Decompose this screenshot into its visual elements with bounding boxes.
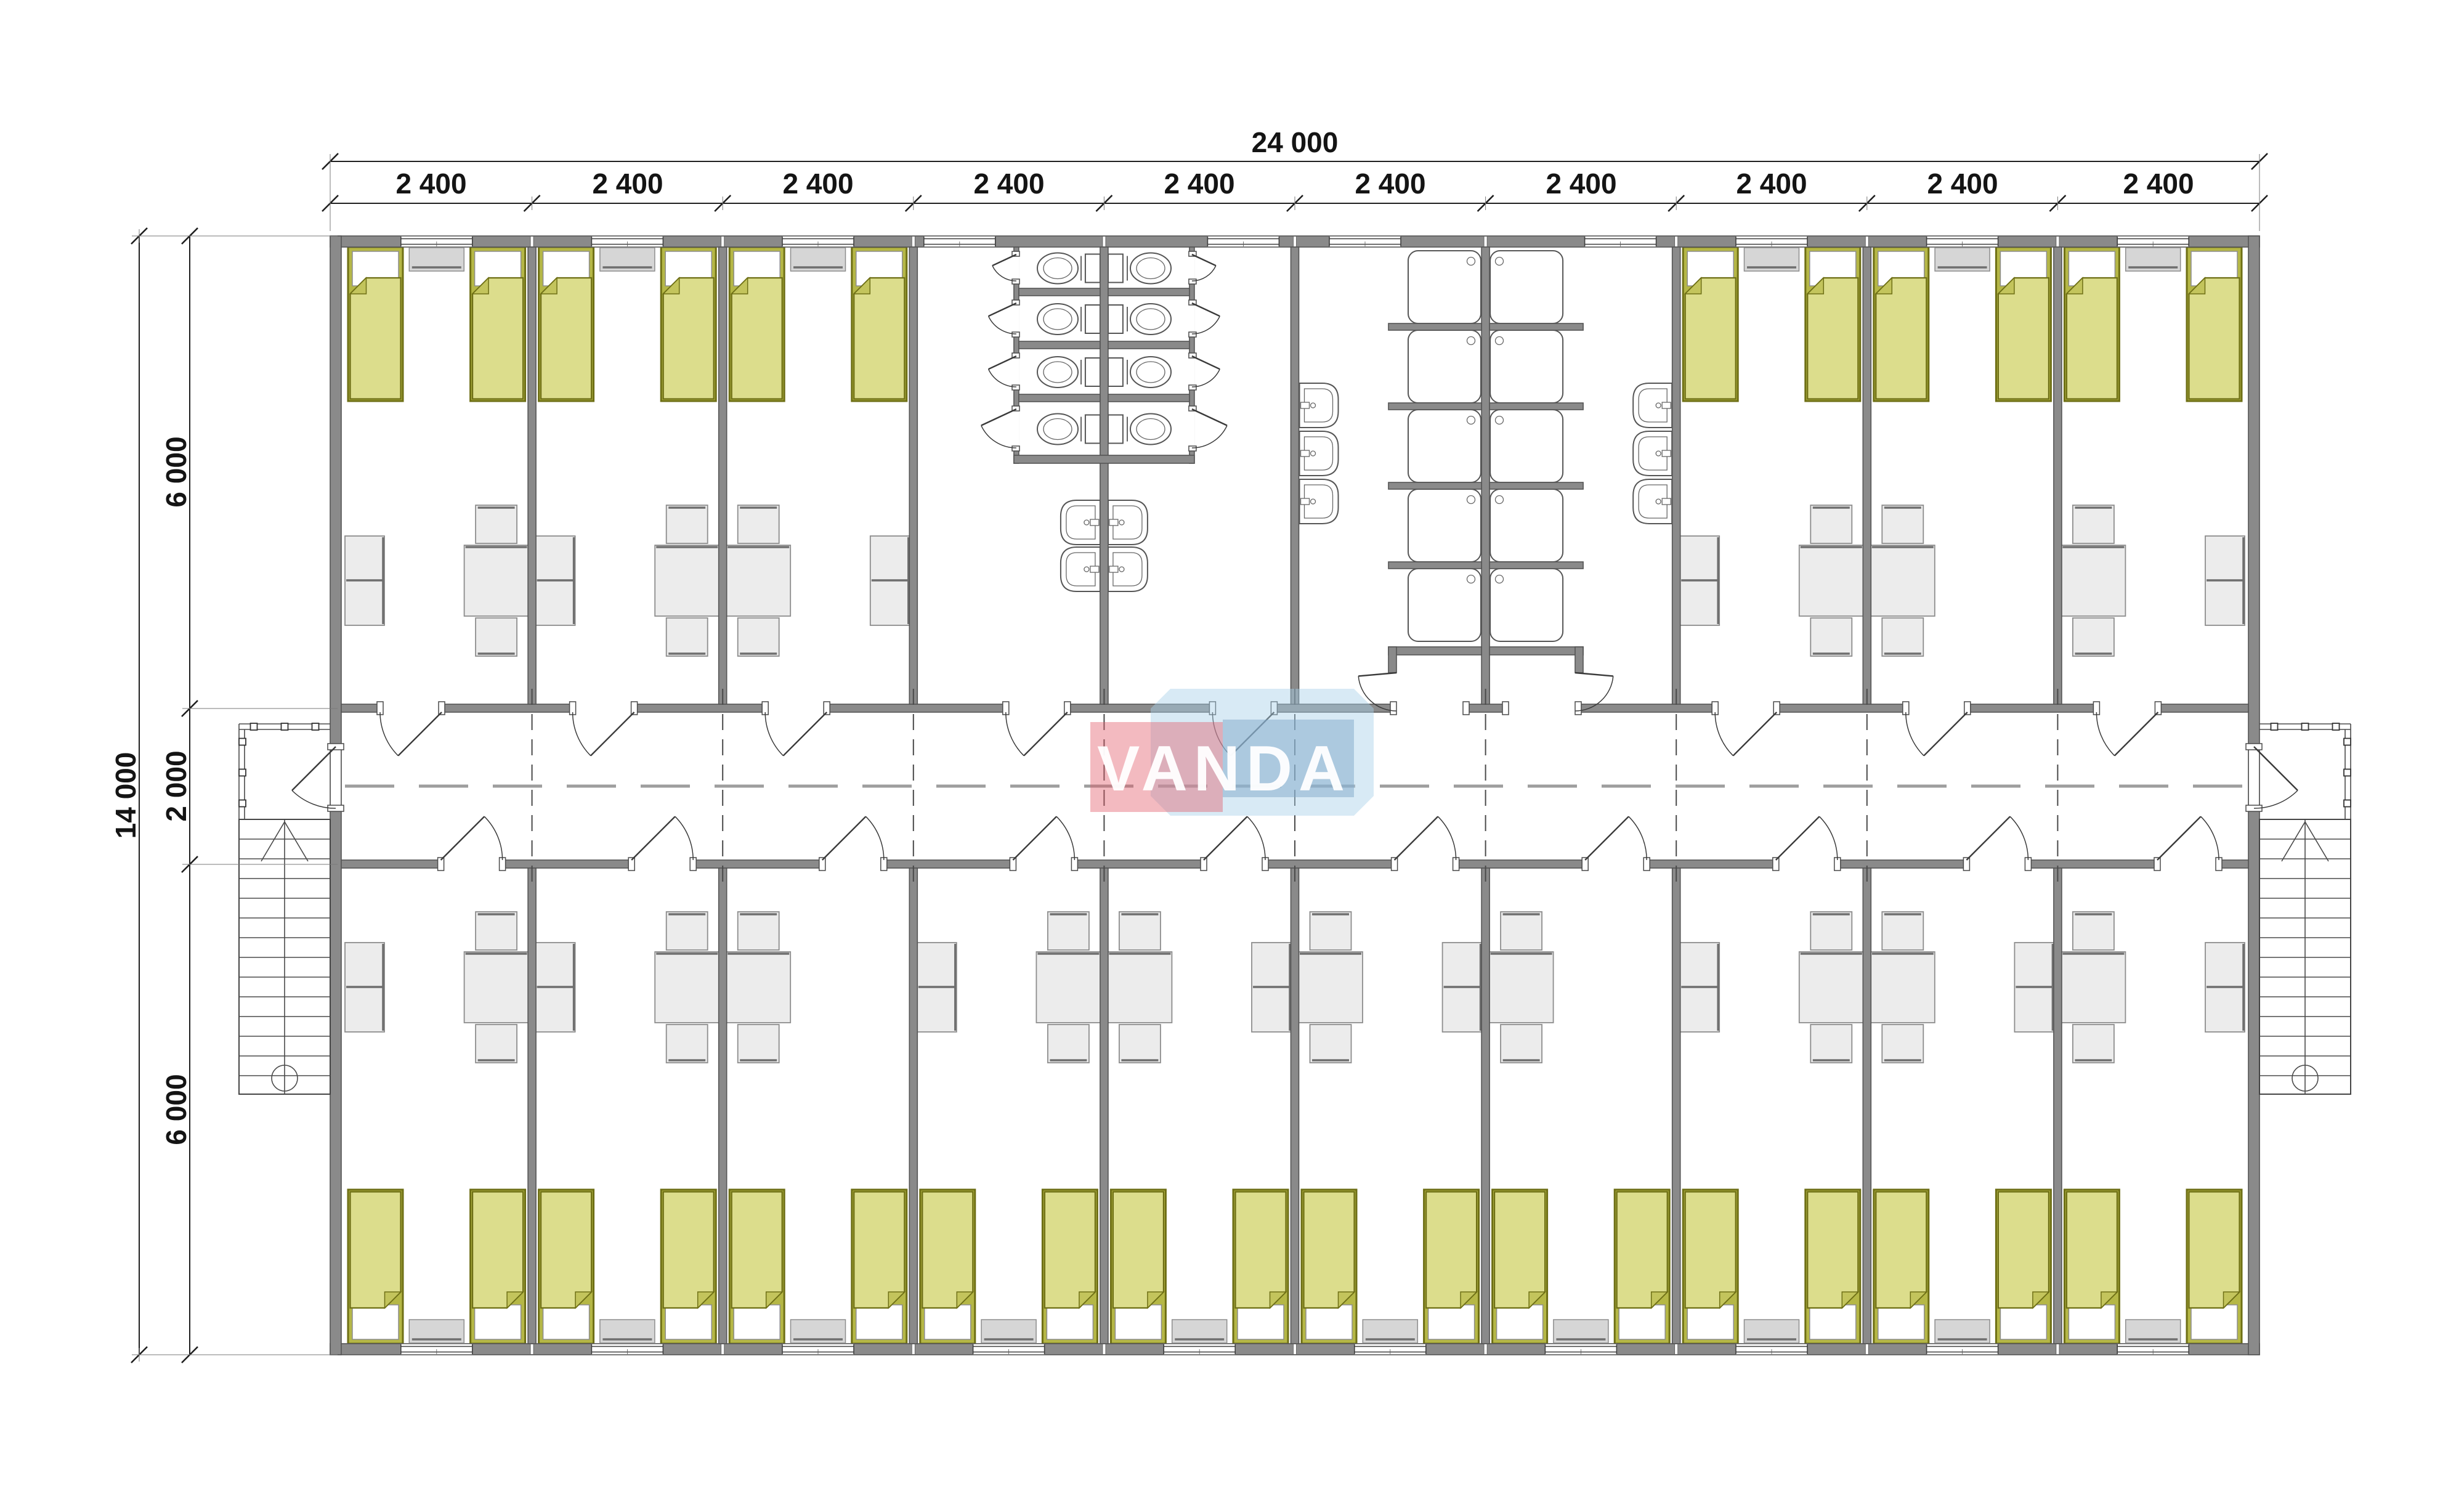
stairs — [2259, 819, 2351, 1094]
bed — [2064, 1190, 2119, 1344]
window — [401, 237, 472, 246]
radiator — [1363, 1320, 1417, 1343]
room-bottom-4 — [917, 912, 1101, 1344]
wash-basin — [1300, 431, 1339, 476]
bed — [471, 1190, 525, 1344]
toilet — [1037, 357, 1100, 388]
bed — [1683, 247, 1738, 401]
chair — [1048, 912, 1089, 950]
wash-basin — [1633, 431, 1672, 476]
radiator — [1172, 1320, 1227, 1343]
chair — [1119, 912, 1161, 950]
toilet — [1108, 304, 1171, 335]
bed — [348, 247, 403, 401]
toilet — [1108, 253, 1171, 284]
table — [1871, 545, 1935, 616]
table — [2061, 545, 2125, 616]
chair — [1310, 912, 1352, 950]
window — [1355, 1344, 1426, 1354]
chair — [476, 618, 517, 656]
chair — [1882, 912, 1923, 950]
dim-segment: 2 400 — [782, 168, 853, 200]
bed — [729, 1190, 784, 1344]
bed — [1683, 1190, 1738, 1344]
chair — [476, 505, 517, 543]
bed — [661, 247, 716, 401]
chair — [1119, 1025, 1161, 1063]
wash-basin — [1633, 479, 1672, 524]
window — [1736, 237, 1807, 246]
chair — [2073, 505, 2114, 543]
radiator — [2126, 1320, 2181, 1343]
chair — [738, 912, 779, 950]
chair — [667, 618, 708, 656]
room-top-1 — [345, 247, 529, 656]
bed — [471, 247, 525, 401]
chair — [667, 912, 708, 950]
bed — [1042, 1190, 1097, 1344]
dim-segment: 2 400 — [395, 168, 466, 200]
chair — [1810, 1025, 1852, 1063]
window — [1927, 237, 1998, 246]
dim-segment: 2 400 — [973, 168, 1044, 200]
chair — [1501, 912, 1542, 950]
wash-basin — [1061, 547, 1100, 591]
wardrobe — [345, 943, 384, 1032]
chair — [1048, 1025, 1089, 1063]
room-bottom-7 — [1489, 912, 1670, 1344]
table — [1871, 952, 1935, 1023]
table — [1799, 545, 1863, 616]
radiator — [600, 1320, 655, 1343]
wash-basin — [1633, 383, 1672, 428]
dim-total-depth: 14 000 — [110, 752, 142, 839]
toilet — [1037, 253, 1100, 284]
wardrobe — [345, 536, 384, 625]
bed — [2187, 247, 2242, 401]
table — [464, 545, 529, 616]
radiator — [1935, 248, 1990, 271]
bed — [661, 1190, 716, 1344]
window — [1585, 237, 1656, 246]
wardrobe — [2014, 943, 2054, 1032]
chair — [667, 1025, 708, 1063]
room-bottom-10 — [2061, 912, 2245, 1344]
chair — [2073, 912, 2114, 950]
bed — [729, 247, 784, 401]
toilet — [1108, 357, 1171, 388]
bed — [2187, 1190, 2242, 1344]
wardrobe — [536, 943, 575, 1032]
wash-basin — [1108, 547, 1148, 591]
chair — [2073, 1025, 2114, 1063]
bed — [1874, 247, 1929, 401]
chair — [1882, 618, 1923, 656]
room-bottom-8 — [1680, 912, 1863, 1344]
dim-segment: 2 400 — [1927, 168, 1998, 200]
chair — [667, 505, 708, 543]
table — [726, 952, 790, 1023]
window — [1207, 237, 1279, 246]
radiator — [1935, 1320, 1990, 1343]
bed — [539, 247, 594, 401]
radiator — [2126, 248, 2181, 271]
bed — [1233, 1190, 1288, 1344]
window — [1164, 1344, 1235, 1354]
bed — [1996, 247, 2051, 401]
wardrobe — [1680, 943, 1719, 1032]
radiator — [409, 1320, 464, 1343]
radiator — [791, 1320, 846, 1343]
wash-basin — [1108, 500, 1148, 545]
wardrobe — [870, 536, 910, 625]
dim-segment: 2 400 — [1355, 168, 1425, 200]
radiator — [1745, 1320, 1799, 1343]
room-bottom-3 — [726, 912, 907, 1344]
room-top-9 — [1871, 247, 2051, 656]
wardrobe — [2205, 536, 2245, 625]
watermark-text: VANDA — [1097, 733, 1351, 805]
table — [1108, 952, 1172, 1023]
room-top-10 — [2061, 247, 2245, 656]
room-bottom-6 — [1299, 912, 1482, 1344]
dim-segment: 2 400 — [1546, 168, 1616, 200]
dim-depth-top: 6 000 — [160, 436, 192, 507]
window — [591, 237, 663, 246]
window — [782, 237, 854, 246]
bed — [852, 1190, 907, 1344]
table — [655, 952, 719, 1023]
chair — [476, 1025, 517, 1063]
bed — [1805, 247, 1860, 401]
wash-basin — [1061, 500, 1100, 545]
dim-segment: 2 400 — [1736, 168, 1807, 200]
chair — [2073, 618, 2114, 656]
bed — [2064, 247, 2119, 401]
dim-segment: 2 400 — [1164, 168, 1234, 200]
room-top-2 — [536, 247, 719, 656]
radiator — [981, 1320, 1036, 1343]
dim-segment: 2 400 — [2123, 168, 2194, 200]
window — [591, 1344, 663, 1354]
toilet — [1037, 414, 1100, 445]
bed — [1805, 1190, 1860, 1344]
wash-basin — [1300, 383, 1339, 428]
chair — [1882, 1025, 1923, 1063]
bed — [1874, 1190, 1929, 1344]
bed — [1493, 1190, 1547, 1344]
bed — [539, 1190, 594, 1344]
dim-depth-corridor: 2 000 — [160, 750, 192, 821]
bed — [1302, 1190, 1356, 1344]
radiator — [409, 248, 464, 271]
window — [973, 1344, 1045, 1354]
dim-segment: 2 400 — [592, 168, 663, 200]
wardrobe — [1443, 943, 1482, 1032]
floorplan-canvas: VANDA 24 000 2 400 2 400 2 400 2 400 2 4… — [0, 0, 2464, 1502]
wash-basin — [1300, 479, 1339, 524]
chair — [738, 618, 779, 656]
bed — [1996, 1190, 2051, 1344]
room-top-8 — [1680, 247, 1863, 656]
table — [655, 545, 719, 616]
room-bottom-5 — [1108, 912, 1291, 1344]
chair — [1310, 1025, 1352, 1063]
floorplan-page: VANDA 24 000 2 400 2 400 2 400 2 400 2 4… — [0, 0, 2464, 1502]
chair — [476, 912, 517, 950]
radiator — [600, 248, 655, 271]
window — [1329, 237, 1401, 246]
radiator — [1745, 248, 1799, 271]
wardrobe — [1680, 536, 1719, 625]
toilet — [1037, 304, 1100, 335]
table — [2061, 952, 2125, 1023]
window — [1736, 1344, 1807, 1354]
chair — [738, 1025, 779, 1063]
bed — [920, 1190, 975, 1344]
room-top-3 — [726, 247, 910, 656]
table — [1036, 952, 1100, 1023]
table — [464, 952, 529, 1023]
window — [1545, 1344, 1616, 1354]
table — [1799, 952, 1863, 1023]
window — [924, 237, 995, 246]
toilet — [1108, 414, 1171, 445]
dim-total-width: 24 000 — [1252, 126, 1339, 158]
chair — [738, 505, 779, 543]
chair — [1810, 912, 1852, 950]
bed — [1111, 1190, 1165, 1344]
table — [726, 545, 790, 616]
chair — [1501, 1025, 1542, 1063]
room-bottom-2 — [536, 912, 719, 1344]
radiator — [1554, 1320, 1608, 1343]
table — [1489, 952, 1554, 1023]
wardrobe — [2205, 943, 2245, 1032]
chair — [1882, 505, 1923, 543]
window — [2117, 237, 2189, 246]
wardrobe — [1252, 943, 1291, 1032]
dim-depth-bottom: 6 000 — [160, 1074, 192, 1145]
room-bottom-9 — [1871, 912, 2054, 1344]
window — [401, 1344, 472, 1354]
chair — [1810, 505, 1852, 543]
wardrobe — [917, 943, 957, 1032]
window — [1927, 1344, 1998, 1354]
table — [1299, 952, 1363, 1023]
chair — [1810, 618, 1852, 656]
window — [782, 1344, 854, 1354]
room-bottom-1 — [345, 912, 529, 1344]
radiator — [791, 248, 846, 271]
stairs — [239, 819, 330, 1094]
bed — [348, 1190, 403, 1344]
bed — [1424, 1190, 1479, 1344]
wardrobe — [536, 536, 575, 625]
window — [2117, 1344, 2189, 1354]
bed — [1615, 1190, 1669, 1344]
bed — [852, 247, 907, 401]
